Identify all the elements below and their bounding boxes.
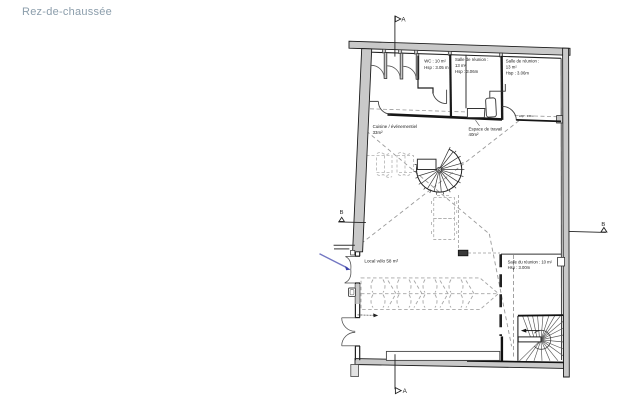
svg-text:40m²: 40m² [469, 132, 480, 137]
svg-text:Espace de travail: Espace de travail [469, 127, 503, 132]
svg-text:B: B [340, 210, 344, 216]
svg-text:13 m²: 13 m² [506, 64, 518, 69]
svg-text:Hsp : 3.06m: Hsp : 3.06m [455, 69, 479, 74]
svg-text:Hsp : 3.05 m: Hsp : 3.05 m [424, 65, 449, 70]
svg-text:Hsp : 3.06m: Hsp : 3.06m [506, 70, 530, 75]
svg-text:13 m²: 13 m² [455, 63, 467, 68]
svg-text:33m²: 33m² [373, 130, 384, 135]
svg-text:WC : 10 m²: WC : 10 m² [424, 58, 446, 63]
svg-text:A: A [403, 388, 408, 395]
svg-text:Cuisine / événementiel: Cuisine / événementiel [373, 124, 417, 129]
svg-text:Salle de réunion :: Salle de réunion : [506, 59, 539, 64]
svg-text:Salle du réunion : 10 m²: Salle du réunion : 10 m² [508, 259, 553, 264]
svg-text:A: A [401, 16, 406, 23]
svg-text:Hsp : 3.00m: Hsp : 3.00m [508, 265, 531, 270]
svg-text:Local vélo 58 m²: Local vélo 58 m² [364, 259, 398, 264]
svg-text:Hsp : 3.0 m: Hsp : 3.0 m [519, 114, 535, 118]
svg-text:B: B [601, 222, 605, 228]
svg-text:Salle de réunion :: Salle de réunion : [455, 57, 488, 62]
